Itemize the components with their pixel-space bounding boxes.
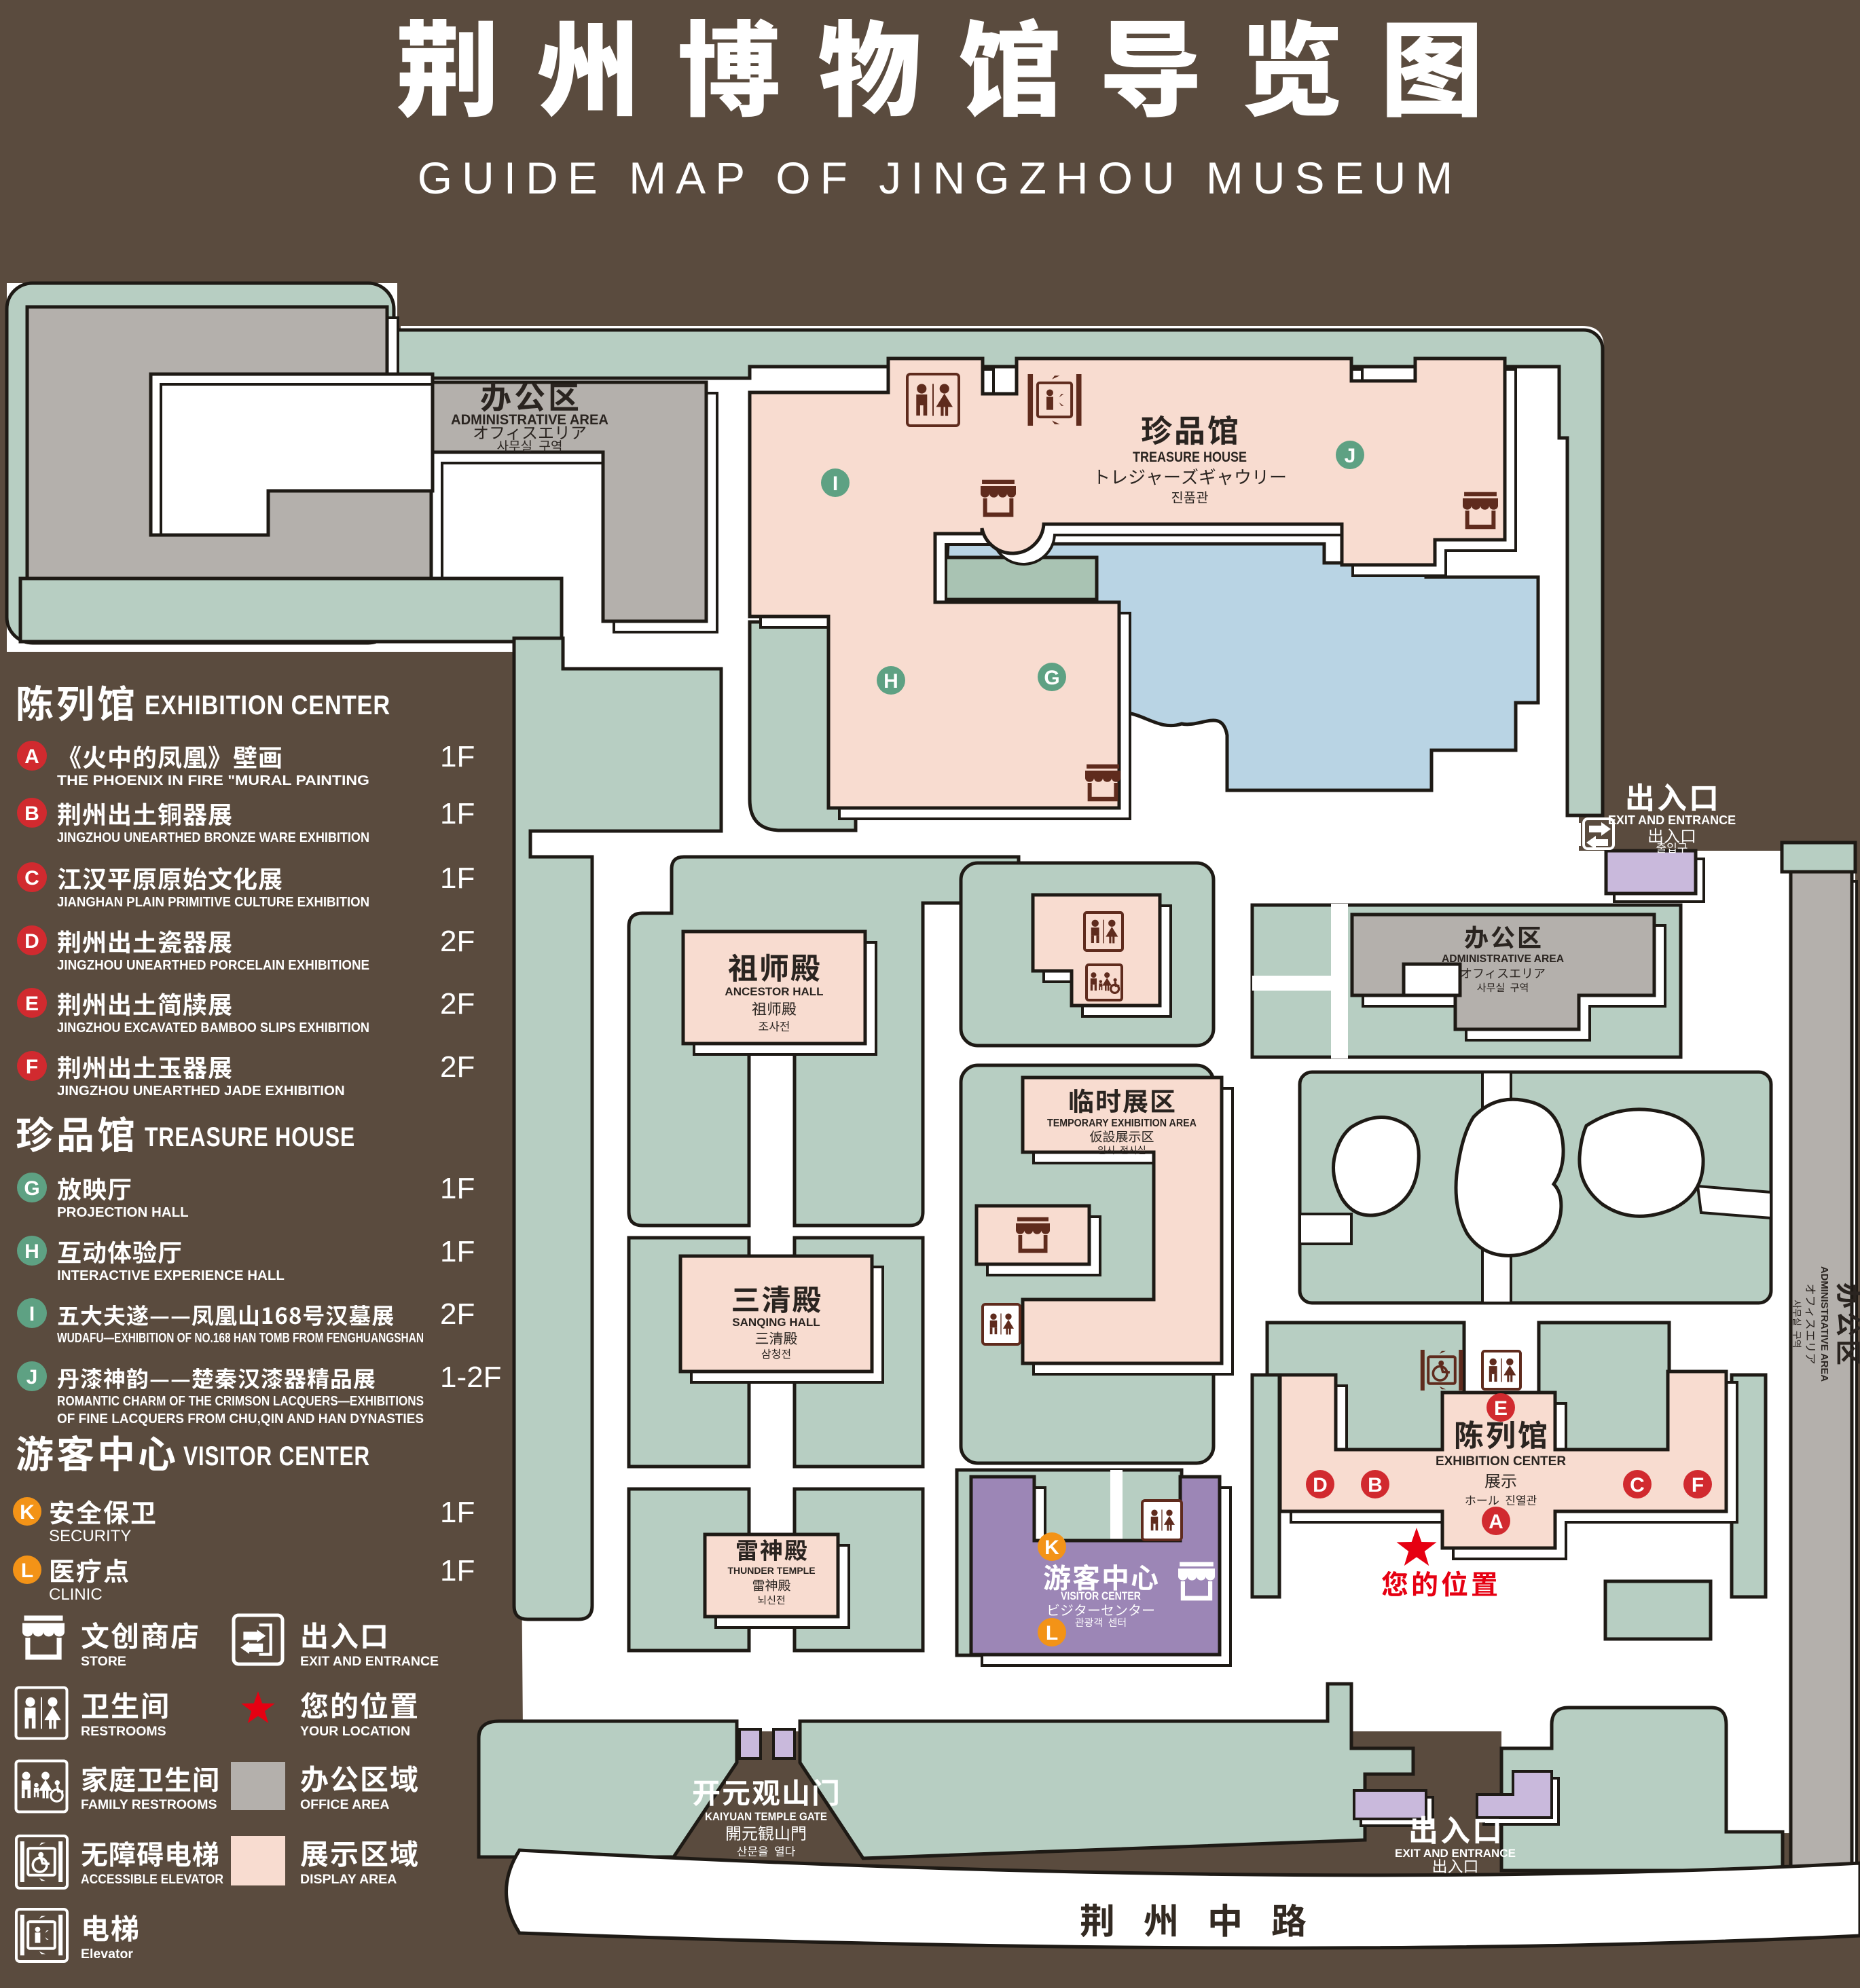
svg-text:VISITOR CENTER: VISITOR CENTER — [183, 1441, 370, 1471]
svg-text:RESTROOMS: RESTROOMS — [81, 1724, 166, 1739]
svg-text:JINGZHOU UNEARTHED JADE EXHIBI: JINGZHOU UNEARTHED JADE EXHIBITION — [57, 1083, 345, 1099]
svg-text:2F: 2F — [440, 1050, 475, 1084]
svg-text:2F: 2F — [440, 987, 475, 1020]
svg-text:ADMINISTRATIVE AREA: ADMINISTRATIVE AREA — [1442, 953, 1564, 965]
svg-text:EXIT AND ENTRANCE: EXIT AND ENTRANCE — [1395, 1847, 1516, 1860]
svg-text:1F: 1F — [440, 862, 475, 895]
svg-text:A: A — [1489, 1511, 1503, 1533]
svg-text:DISPLAY AREA: DISPLAY AREA — [300, 1872, 397, 1887]
svg-text:ANCESTOR HALL: ANCESTOR HALL — [725, 985, 823, 998]
svg-text:K: K — [1044, 1536, 1059, 1559]
svg-text:EXIT AND ENTRANCE: EXIT AND ENTRANCE — [1608, 813, 1736, 827]
svg-text:YOUR LOCATION: YOUR LOCATION — [300, 1724, 410, 1739]
svg-text:EXHIBITION CENTER: EXHIBITION CENTER — [1436, 1454, 1566, 1469]
svg-text:OF FINE LACQUERS FROM CHU,QIN: OF FINE LACQUERS FROM CHU,QIN AND HAN DY… — [57, 1411, 424, 1426]
svg-text:GUIDE MAP OF JINGZHOU MUSEUM: GUIDE MAP OF JINGZHOU MUSEUM — [418, 153, 1463, 203]
svg-text:F: F — [26, 1056, 38, 1078]
svg-text:TEMPORARY EXHIBITION AREA: TEMPORARY EXHIBITION AREA — [1047, 1118, 1197, 1129]
svg-text:JIANGHAN PLAIN PRIMITIVE CULTU: JIANGHAN PLAIN PRIMITIVE CULTURE EXHIBIT… — [57, 894, 369, 910]
svg-text:ACCESSIBLE ELEVATOR: ACCESSIBLE ELEVATOR — [81, 1872, 223, 1887]
svg-text:1F: 1F — [440, 1554, 475, 1587]
svg-text:FAMILY RESTROOMS: FAMILY RESTROOMS — [81, 1797, 217, 1812]
svg-text:THUNDER TEMPLE: THUNDER TEMPLE — [727, 1565, 815, 1576]
svg-text:1F: 1F — [440, 797, 475, 830]
svg-text:1-2F: 1-2F — [440, 1361, 501, 1394]
svg-text:H: H — [24, 1240, 39, 1263]
svg-text:WUDAFU—EXHIBITION OF NO.168 HA: WUDAFU—EXHIBITION OF NO.168 HAN TOMB FRO… — [57, 1330, 424, 1346]
svg-text:ROMANTIC CHARM OF THE CRIMSON: ROMANTIC CHARM OF THE CRIMSON LACQUERS—E… — [57, 1393, 424, 1409]
svg-text:L: L — [21, 1560, 33, 1582]
svg-text:J: J — [26, 1366, 38, 1388]
svg-text:1F: 1F — [440, 1496, 475, 1529]
svg-text:1F: 1F — [440, 1235, 475, 1268]
svg-text:G: G — [24, 1177, 39, 1200]
svg-text:JINGZHOU UNEARTHED PORCELAIN E: JINGZHOU UNEARTHED PORCELAIN EXHIBITIONE — [57, 957, 369, 973]
svg-text:TREASURE HOUSE: TREASURE HOUSE — [1133, 449, 1247, 465]
svg-text:A: A — [24, 745, 39, 768]
svg-text:J: J — [1345, 445, 1356, 467]
svg-text:ADMINISTRATIVE AREA: ADMINISTRATIVE AREA — [1819, 1266, 1830, 1382]
svg-text:TREASURE HOUSE: TREASURE HOUSE — [145, 1122, 355, 1152]
svg-text:JINGZHOU EXCAVATED BAMBOO SLIP: JINGZHOU EXCAVATED BAMBOO SLIPS EXHIBITI… — [57, 1020, 369, 1035]
svg-text:OFFICE AREA: OFFICE AREA — [300, 1797, 389, 1812]
svg-text:VISITOR CENTER: VISITOR CENTER — [1061, 1589, 1141, 1602]
svg-text:B: B — [24, 803, 39, 825]
svg-text:I: I — [833, 473, 838, 495]
svg-text:L: L — [1046, 1622, 1058, 1644]
svg-text:E: E — [25, 993, 39, 1015]
svg-text:D: D — [1313, 1474, 1328, 1496]
svg-text:THE PHOENIX IN FIRE "MURAL PAI: THE PHOENIX IN FIRE "MURAL PAINTING — [57, 773, 369, 788]
svg-text:I: I — [29, 1303, 35, 1325]
svg-text:1F: 1F — [440, 1172, 475, 1205]
svg-text:K: K — [20, 1501, 35, 1524]
svg-text:H: H — [883, 670, 898, 693]
svg-text:KAIYUAN TEMPLE GATE: KAIYUAN TEMPLE GATE — [705, 1810, 827, 1823]
svg-text:CLINIC: CLINIC — [49, 1585, 103, 1604]
svg-text:2F: 2F — [440, 925, 475, 958]
svg-text:EXHIBITION CENTER: EXHIBITION CENTER — [145, 691, 390, 720]
svg-text:PROJECTION HALL: PROJECTION HALL — [57, 1204, 189, 1220]
svg-text:EXIT AND ENTRANCE: EXIT AND ENTRANCE — [300, 1654, 439, 1669]
svg-text:F: F — [1692, 1474, 1704, 1496]
svg-text:C: C — [24, 867, 39, 889]
svg-text:STORE: STORE — [81, 1654, 126, 1669]
svg-text:E: E — [1494, 1397, 1508, 1420]
svg-text:JINGZHOU UNEARTHED BRONZE WARE: JINGZHOU UNEARTHED BRONZE WARE EXHIBITIO… — [57, 830, 369, 845]
svg-text:2F: 2F — [440, 1297, 475, 1331]
svg-text:Elevator: Elevator — [81, 1947, 133, 1962]
svg-text:SECURITY: SECURITY — [49, 1527, 131, 1545]
svg-text:G: G — [1044, 667, 1059, 689]
svg-text:B: B — [1368, 1474, 1383, 1496]
svg-text:SANQING HALL: SANQING HALL — [732, 1316, 820, 1329]
svg-text:ADMINISTRATIVE AREA: ADMINISTRATIVE AREA — [451, 412, 608, 428]
svg-text:INTERACTIVE EXPERIENCE HALL: INTERACTIVE EXPERIENCE HALL — [57, 1268, 285, 1283]
svg-text:D: D — [24, 930, 39, 953]
svg-text:C: C — [1630, 1474, 1645, 1496]
svg-text:1F: 1F — [440, 740, 475, 773]
